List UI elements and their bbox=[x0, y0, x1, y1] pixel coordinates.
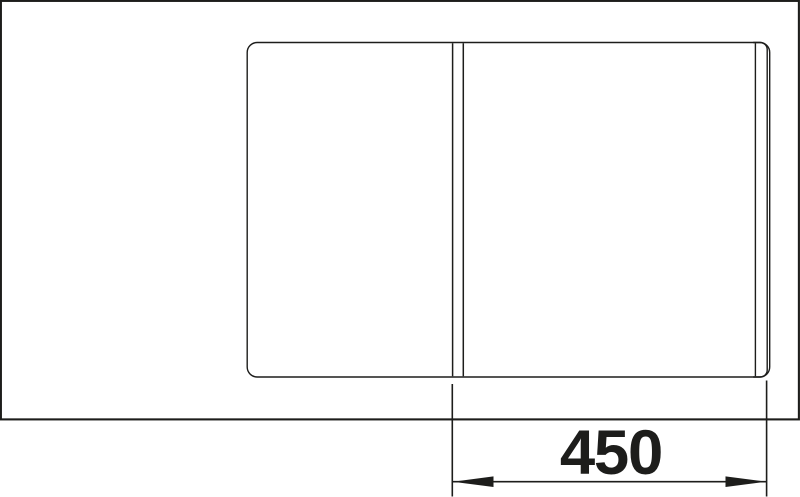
svg-text:450: 450 bbox=[560, 418, 662, 488]
